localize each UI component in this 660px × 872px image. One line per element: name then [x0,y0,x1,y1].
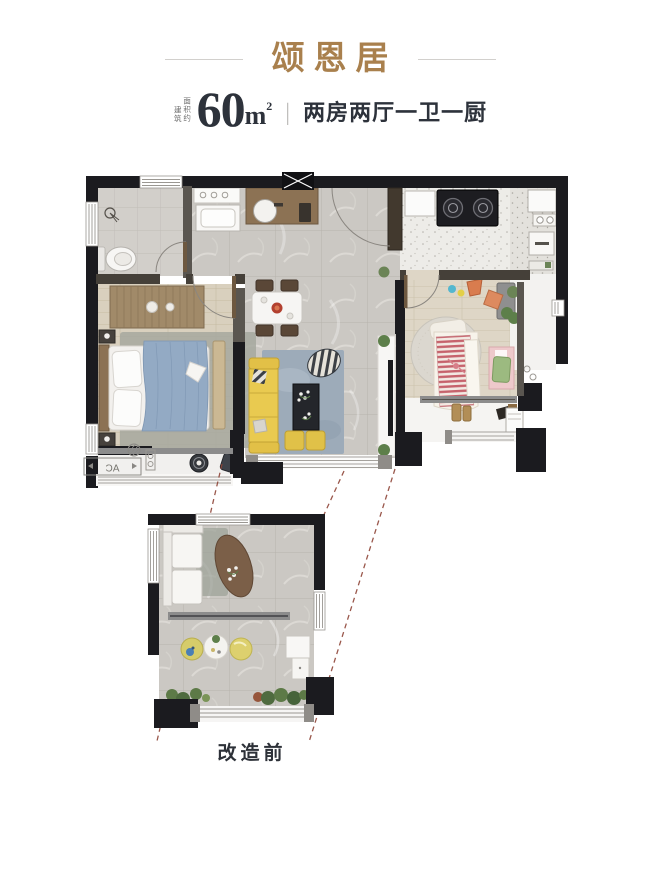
fridge-icon [405,191,435,216]
before-renovation-label: 改造前 [182,738,322,765]
floor-cushions [181,635,252,660]
ac-text: AC [106,464,120,475]
ottoman [306,431,325,450]
bed-bench [213,341,225,429]
door-gap [406,270,439,280]
floorplan-poster: 颂恩居 建筑面积约 60 m2 | 两房两厅一卫一厨 [0,0,660,872]
small-plan-before [148,514,334,728]
sink-icon [254,200,277,223]
main-floor-plan: AC [84,172,568,488]
duvet [142,341,208,431]
plant-icon [379,267,390,278]
sofa-icon [249,358,279,369]
toilet-tank [97,247,105,271]
ottoman [285,431,304,450]
plant-icon [378,444,390,456]
chair [492,356,511,382]
bed-headboard [99,345,109,431]
plan-area: AC [0,0,660,872]
entry-door-icon [282,172,314,190]
small-sofa [163,524,203,606]
tv-icon [388,360,393,436]
plant-icon [378,335,390,347]
floor-plan-graphic: AC [0,0,660,872]
small-divider-track [168,612,290,620]
coffee-table [293,384,319,430]
